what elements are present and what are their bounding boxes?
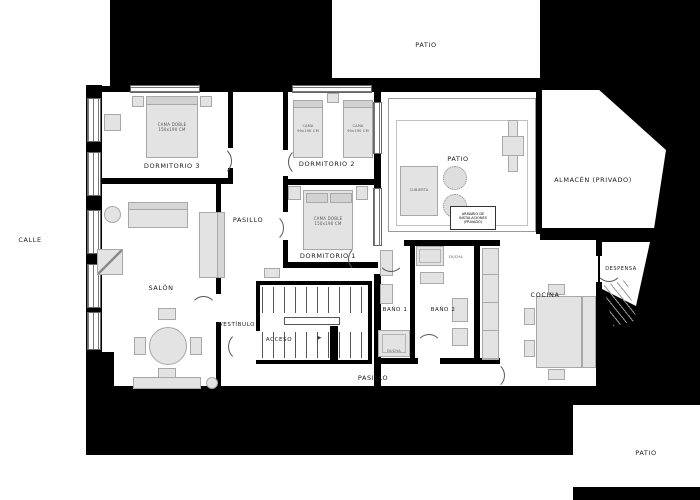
floor-plan: CUBIERTA ARMARIO DE INSTALACIONES (PRIVA… [0,0,700,500]
label-pasillo-norte: PASILLO [233,216,263,224]
label-almacen: ALMACÉN (PRIVADO) [554,176,632,184]
stairs-wall-top [256,281,372,285]
label-vestibulo: VESTÍBULO [219,322,255,328]
kitchen-table [536,296,582,368]
stairs-handrail [284,317,340,325]
door-cocina [478,362,505,389]
wall-almacen-left [536,88,542,234]
mass-right-wedge [597,88,700,250]
stairs-wall-left [256,281,260,331]
wall-cocina-right-a [596,240,602,256]
bed-double-dorm1-label: CAMA DOBLE 150x190 CM [303,216,353,226]
stairs-flight-upper [262,287,366,313]
window-left-1 [87,98,101,142]
label-dormitorio2: DORMITORIO 2 [299,160,355,168]
bano2-shower-label: DUCHA [444,255,468,260]
label-patio-sureste: PATIO [635,449,656,457]
closet-dorm1-left [288,186,301,200]
label-bano2: BAÑO 2 [431,307,456,313]
stairs-flight-lower [262,332,366,358]
bed-single-1-label: CAMA 90x190 CM [293,124,323,133]
kitchen-counter [482,248,499,360]
door-salon [190,296,217,323]
closet-dorm1-right [356,186,368,200]
side-table-round [104,206,121,223]
label-patio-central: PATIO [447,155,468,163]
wall-pasillo-left-b [228,168,233,184]
bano1-toilet [380,284,393,304]
door-acceso [228,332,257,361]
wall-bano1-bano2 [410,246,415,362]
window-left-3 [87,210,101,254]
wall-east-zone-b [374,154,381,188]
label-despensa: DESPENSA [605,266,637,272]
label-calle: CALLE [18,236,41,244]
stairs-wall-right [368,281,372,364]
salon-chair-top [158,308,176,320]
wall-cocina-left [474,244,480,362]
dorm3-side-table [104,114,121,131]
wall-pasillo-left-a [228,88,233,148]
label-patio-norte: PATIO [415,41,436,49]
vestibulo-cabinet [264,268,280,278]
mass-bottom-band [86,392,598,455]
salon-chair-left [134,337,146,355]
label-dormitorio1: DORMITORIO 1 [300,252,356,260]
patio-tree-1 [443,166,467,190]
mass-top-left [110,0,332,88]
wall-almacen-bottom [540,228,654,240]
window-dorm2-patio [373,102,382,154]
window-dorm1-patio [373,188,382,246]
door-bano1 [378,246,404,272]
mass-bottom-edge [573,487,700,500]
stairs-direction-arrow: ➤ [316,334,322,342]
patio-southeast-area [573,405,700,487]
bano2-cabinet [452,328,468,346]
sideboard-salon [133,377,201,389]
dining-table-salon [149,327,187,365]
mass-top-right [540,0,700,90]
plant-vestibulo [206,377,218,389]
door-dormitorio3 [202,146,232,176]
wall-dorm3-bottom [98,178,233,184]
label-bano1: BAÑO 1 [383,307,408,313]
nightstand-dorm3-left [132,96,144,107]
label-dormitorio3: DORMITORIO 3 [144,162,200,170]
sofa-horizontal [128,202,188,228]
label-cocina: COCINA [530,291,559,299]
bed-single-2-label: CAMA 90x190 CM [343,124,373,133]
label-acceso: ACCESO [266,337,292,343]
patio-grill-body [502,136,524,156]
nightstand-dorm2 [327,93,339,103]
kitchen-chair-left-1 [524,308,535,325]
wall-east-zone-a [374,88,381,102]
stairs-wall-bottom [256,360,372,364]
salon-chair-right [190,337,202,355]
window-left-2 [87,152,101,196]
tv-corner-unit [97,249,123,275]
window-dorm3-top [130,85,200,93]
bano2-shower [416,246,444,266]
kitchen-table-extension [582,296,596,368]
stairs-mid-wall [330,326,338,362]
bano1-shower-label: DUCHA [380,349,408,354]
wall-banos-bottom-a [374,358,418,364]
wall-dorm2-dorm1 [286,179,378,185]
wall-salon-right-b [216,322,221,388]
label-pasillo-sur: PASILLO [358,374,388,382]
window-left-5 [87,312,101,350]
kitchen-chair-left-2 [524,340,535,357]
label-salon: SALÓN [148,284,173,292]
door-bano2 [416,334,442,360]
bano2-sink [420,272,444,284]
kitchen-chair-bottom [548,369,565,380]
armario-instalaciones-box: ARMARIO DE INSTALACIONES (PRIVADO) [450,206,496,230]
window-dorm2-top [292,85,372,93]
wall-cocina-right-b [596,282,602,390]
wall-pasillo-right-a [283,88,288,150]
armario-line3: (PRIVADO) [464,220,482,224]
sofa-vertical [199,212,225,278]
nightstand-dorm3-right [200,96,212,107]
bed-double-dorm3-label: CAMA DOBLE 150x190 CM [146,122,198,132]
patio-planter-label: CUBIERTA [401,188,437,193]
